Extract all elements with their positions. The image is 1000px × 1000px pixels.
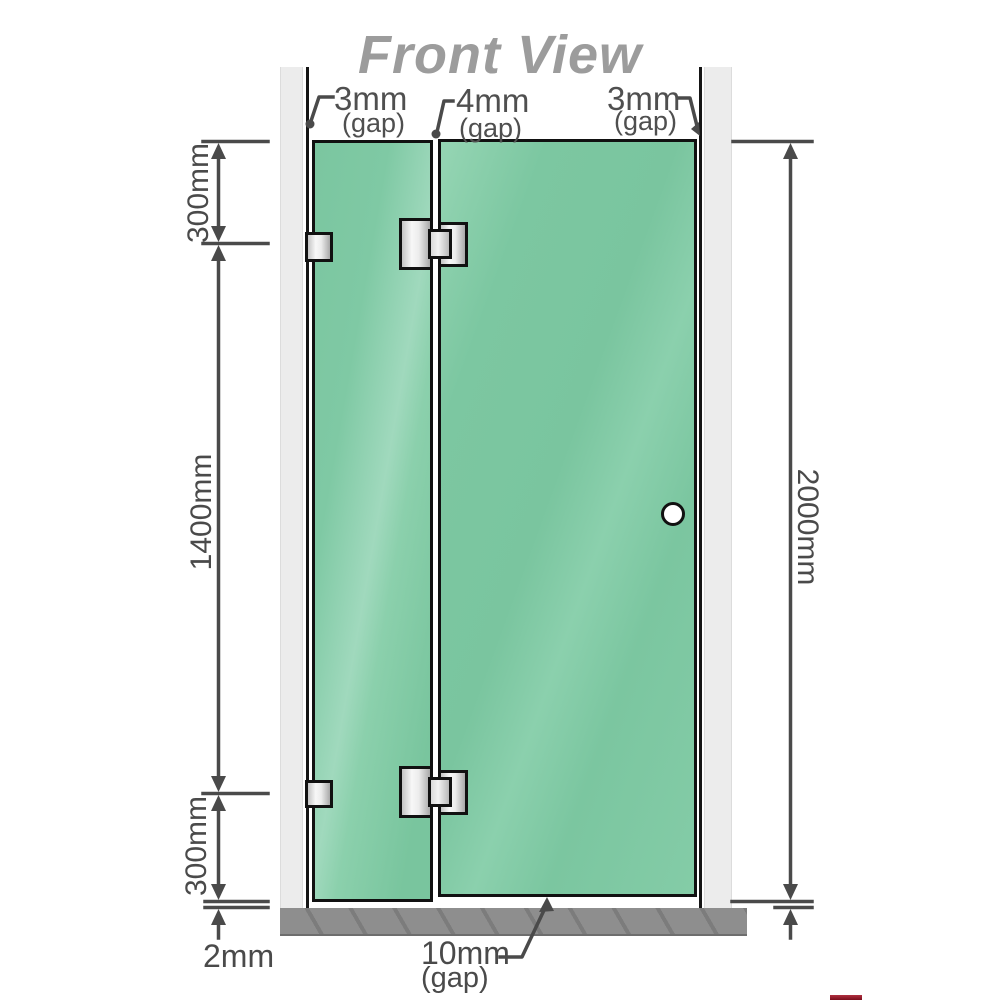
wall-bracket-bottom [305,780,333,808]
dim-label-left-bottom: 300mm [180,796,214,896]
gap-label-top-right-note: (gap) [614,106,677,137]
left-wall [280,67,303,908]
right-wall [704,67,732,908]
hinge-top-knuckle [428,229,452,259]
gap-label-top-middle-note: (gap) [459,113,522,144]
leader-gap-top-middle [432,101,454,139]
dim-label-right: 2000mm [790,469,824,586]
floor-base [280,908,747,936]
hinge-bottom-knuckle [428,777,452,807]
floor-gap-label: 2mm [203,938,274,975]
wall-bracket-top [305,232,333,262]
door-knob [661,502,685,526]
gap-label-top-left-note: (gap) [342,108,405,139]
diagram-canvas: Front View [0,0,1000,1000]
right-wall-inner-edge [699,67,702,908]
diagram-title: Front View [358,24,642,86]
logo-fragment [830,995,862,1000]
leader-gap-top-left [306,97,334,129]
dim-label-left-middle: 1400mm [185,454,219,571]
door-gap-label-note: (gap) [421,962,489,995]
leader-gap-top-right [678,98,700,136]
dim-label-left-top: 300mm [182,143,216,243]
glass-door-panel [438,139,697,897]
